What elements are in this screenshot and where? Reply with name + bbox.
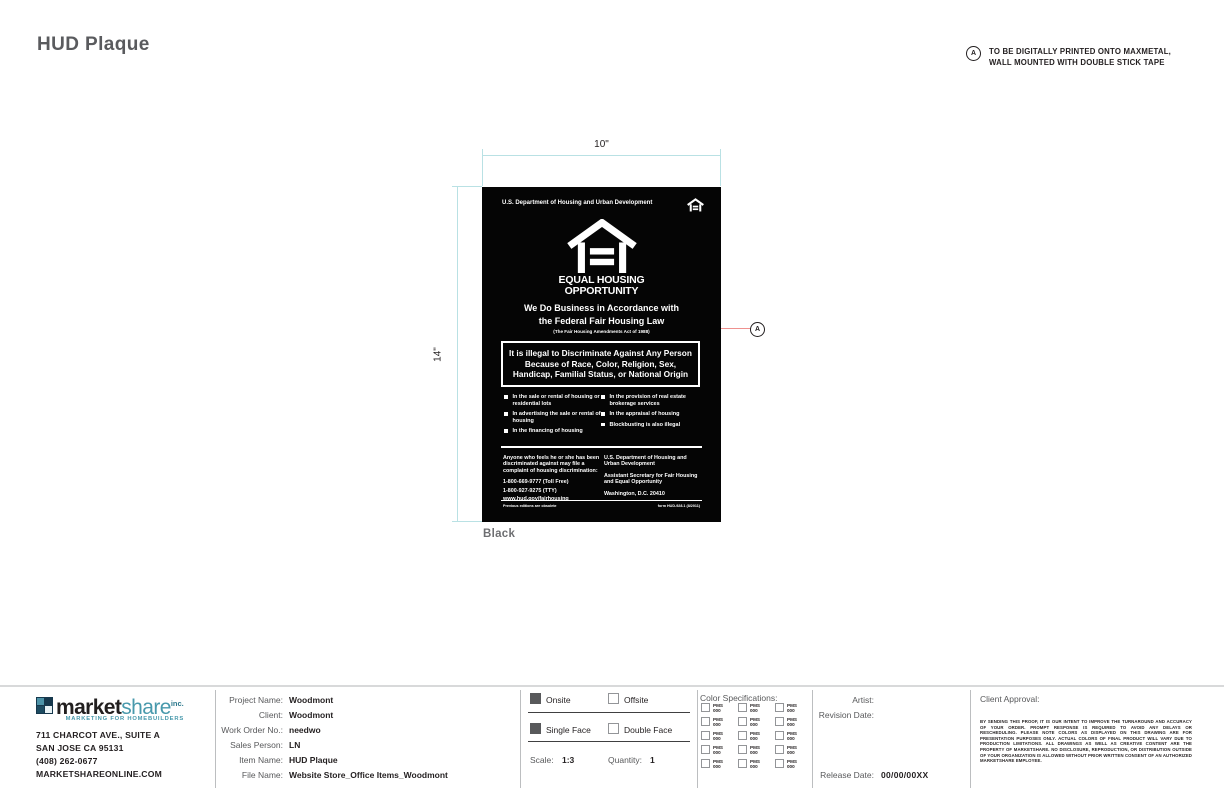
hud-plaque-artwork: U.S. Department of Housing and Urban Dev… xyxy=(482,187,721,522)
plaque-footer-left: Previous editions are obsolete xyxy=(503,504,557,508)
onsite-checkbox[interactable] xyxy=(530,693,541,704)
pms-spec-cell: PMS000 xyxy=(775,703,812,713)
revision-date-label: Revision Date: xyxy=(814,710,874,720)
pms-label: PMS000 xyxy=(787,759,797,769)
headline-line2: the Federal Fair Housing Law xyxy=(482,315,721,328)
pms-checkbox[interactable] xyxy=(738,703,747,712)
dimension-tick-bottom xyxy=(452,521,482,522)
equal-housing-line2: OPPORTUNITY xyxy=(482,286,721,297)
offsite-checkbox[interactable] xyxy=(608,693,619,704)
phone-tty: 1-800-927-9275 (TTY) xyxy=(503,488,601,494)
height-dimension-label: 14" xyxy=(433,342,444,368)
options-separator xyxy=(528,712,690,713)
pms-label: PMS000 xyxy=(713,745,723,755)
bullet-square-icon xyxy=(504,395,508,399)
address-line1: 711 CHARCOT AVE., SUITE A xyxy=(36,729,162,742)
bullet-list-left: In the sale or rental of housing or resi… xyxy=(504,394,601,439)
bullet-item: In the provision of real estate brokerag… xyxy=(601,394,701,407)
pms-spec-cell: PMS000 xyxy=(738,703,775,713)
pms-label: PMS000 xyxy=(787,717,797,727)
pms-label: PMS000 xyxy=(713,731,723,741)
company-address: 711 CHARCOT AVE., SUITE A SAN JOSE CA 95… xyxy=(36,729,162,781)
pms-label: PMS000 xyxy=(750,731,760,741)
color-specifications-title: Color Specifications: xyxy=(700,693,777,703)
double-face-checkbox[interactable] xyxy=(608,723,619,734)
note-a-text: TO BE DIGITALLY PRINTED ONTO MAXMETAL, W… xyxy=(989,46,1171,68)
double-face-label: Double Face xyxy=(624,725,672,735)
bullet-text: In the appraisal of housing xyxy=(610,411,680,418)
quantity-label: Quantity: xyxy=(608,755,642,765)
pms-checkbox[interactable] xyxy=(701,703,710,712)
bullet-list-right: In the provision of real estate brokerag… xyxy=(601,394,701,432)
bullet-item: Blockbusting is also illegal xyxy=(601,422,701,429)
field-label-file-name: File Name: xyxy=(210,770,283,780)
phone-toll-free: 1-800-669-9777 (Toll Free) xyxy=(503,479,601,485)
pms-label: PMS000 xyxy=(750,717,760,727)
bullet-square-icon xyxy=(504,412,508,416)
plaque-divider-top xyxy=(501,446,702,448)
field-value-client: Woodmont xyxy=(289,710,333,720)
dimension-extension-left xyxy=(482,149,483,186)
note-a-line2: WALL MOUNTED WITH DOUBLE STICK TAPE xyxy=(989,57,1171,68)
bullet-square-icon xyxy=(504,429,508,433)
dept-block-line3: Washington, D.C. 20410 xyxy=(604,491,700,497)
page-title: HUD Plaque xyxy=(37,34,150,56)
titleblock-divider xyxy=(697,690,698,788)
pms-label: PMS000 xyxy=(750,759,760,769)
pms-label: PMS000 xyxy=(787,745,797,755)
marketshare-wordmark: marketshareinc. xyxy=(56,694,184,718)
pms-checkbox[interactable] xyxy=(775,731,784,740)
pms-checkbox[interactable] xyxy=(775,717,784,726)
bullet-square-icon xyxy=(601,423,605,427)
pms-spec-cell: PMS000 xyxy=(701,703,738,713)
pms-spec-cell: PMS000 xyxy=(775,745,812,755)
bullet-text: In the sale or rental of housing or resi… xyxy=(513,394,602,407)
plaque-color-label: Black xyxy=(483,528,515,540)
pms-spec-cell: PMS000 xyxy=(775,731,812,741)
pms-spec-cell: PMS000 xyxy=(738,717,775,727)
client-approval-title: Client Approval: xyxy=(980,694,1040,704)
bullet-item: In advertising the sale or rental of hou… xyxy=(504,411,601,424)
pms-spec-cell: PMS000 xyxy=(738,759,775,769)
bullet-square-icon xyxy=(601,395,605,399)
scale-label: Scale: xyxy=(530,755,554,765)
onsite-label: Onsite xyxy=(546,695,571,705)
artist-label: Artist: xyxy=(814,695,874,705)
bullet-item: In the sale or rental of housing or resi… xyxy=(504,394,601,407)
pms-checkbox[interactable] xyxy=(738,731,747,740)
options-separator xyxy=(528,741,690,742)
equal-housing-logo-icon xyxy=(557,219,647,273)
field-value-project-name: Woodmont xyxy=(289,695,333,705)
field-value-file-name: Website Store_Office Items_Woodmont xyxy=(289,770,448,780)
pms-spec-cell: PMS000 xyxy=(775,759,812,769)
equal-housing-wordmark: EQUAL HOUSING OPPORTUNITY xyxy=(482,275,721,296)
plaque-footer-right: form HUD-928.1 (8/2011) xyxy=(658,504,700,508)
marketshare-tagline: MARKETING FOR HOMEBUILDERS xyxy=(53,716,184,722)
pms-checkbox[interactable] xyxy=(701,731,710,740)
offsite-label: Offsite xyxy=(624,695,648,705)
department-column: U.S. Department of Housing and Urban Dev… xyxy=(604,455,700,499)
plaque-divider-bottom xyxy=(501,500,702,501)
pms-checkbox[interactable] xyxy=(775,703,784,712)
pms-spec-cell: PMS000 xyxy=(701,731,738,741)
field-label-item-name: Item Name: xyxy=(210,755,283,765)
quantity-value: 1 xyxy=(650,755,655,765)
note-a-marker: A xyxy=(966,46,981,61)
pms-checkbox[interactable] xyxy=(738,759,747,768)
note-a: A TO BE DIGITALLY PRINTED ONTO MAXMETAL,… xyxy=(966,46,1171,68)
plaque-subhead: (The Fair Housing Amendments Act of 1988… xyxy=(482,329,721,334)
pms-checkbox[interactable] xyxy=(701,717,710,726)
dimension-line-width xyxy=(482,155,721,156)
titleblock-divider xyxy=(970,690,971,788)
discrimination-notice-box: It is illegal to Discriminate Against An… xyxy=(501,341,700,387)
bullet-text: Blockbusting is also illegal xyxy=(610,422,681,429)
field-value-item-name: HUD Plaque xyxy=(289,755,338,765)
bullet-text: In the provision of real estate brokerag… xyxy=(610,394,702,407)
callout-leader-line xyxy=(721,328,751,329)
note-a-line1: TO BE DIGITALLY PRINTED ONTO MAXMETAL, xyxy=(989,46,1171,57)
pms-label: PMS000 xyxy=(750,745,760,755)
field-label-client: Client: xyxy=(210,710,283,720)
pms-label: PMS000 xyxy=(787,703,797,713)
pms-label: PMS000 xyxy=(750,703,760,713)
single-face-label: Single Face xyxy=(546,725,591,735)
pms-spec-cell: PMS000 xyxy=(701,745,738,755)
pms-spec-cell: PMS000 xyxy=(701,717,738,727)
pms-grid: PMS000 PMS000 PMS000 PMS000 PMS000 PMS00… xyxy=(701,703,813,769)
bullet-item: In the appraisal of housing xyxy=(601,411,701,418)
width-dimension-label: 10" xyxy=(482,139,721,150)
address-phone: (408) 262-0677 xyxy=(36,755,162,768)
pms-label: PMS000 xyxy=(713,717,723,727)
marketshare-logo-mark-icon xyxy=(36,697,53,714)
release-date-value: 00/00/00XX xyxy=(881,770,928,780)
pms-checkbox[interactable] xyxy=(775,759,784,768)
complaint-text: Anyone who feels he or she has been disc… xyxy=(503,455,601,474)
single-face-checkbox[interactable] xyxy=(530,723,541,734)
pms-checkbox[interactable] xyxy=(738,717,747,726)
scale-value: 1:3 xyxy=(562,755,574,765)
release-date-label: Release Date: xyxy=(814,770,874,780)
dimension-line-height xyxy=(457,187,458,522)
field-label-sales-person: Sales Person: xyxy=(210,740,283,750)
pms-spec-cell: PMS000 xyxy=(775,717,812,727)
dept-block-line1: U.S. Department of Housing and Urban Dev… xyxy=(604,455,700,468)
titleblock-divider xyxy=(520,690,521,788)
client-approval-fine-print: BY SENDING THIS PROOF, IT IS OUR INTENT … xyxy=(980,719,1192,764)
marketshare-logo: marketshareinc. xyxy=(36,694,184,718)
address-website: MARKETSHAREONLINE.COM xyxy=(36,768,162,781)
pms-checkbox[interactable] xyxy=(701,745,710,754)
pms-checkbox[interactable] xyxy=(775,745,784,754)
pms-spec-cell: PMS000 xyxy=(738,745,775,755)
pms-spec-cell: PMS000 xyxy=(738,731,775,741)
complaint-column: Anyone who feels he or she has been disc… xyxy=(503,455,601,504)
dimension-extension-right xyxy=(720,149,721,186)
field-value-sales-person: LN xyxy=(289,740,300,750)
proof-sheet: HUD Plaque A TO BE DIGITALLY PRINTED ONT… xyxy=(0,0,1224,792)
field-value-work-order: needwo xyxy=(289,725,321,735)
headline-line1: We Do Business in Accordance with xyxy=(482,302,721,315)
dept-block-line2: Assistant Secretary for Fair Housing and… xyxy=(604,473,700,486)
pms-checkbox[interactable] xyxy=(738,745,747,754)
pms-label: PMS000 xyxy=(713,759,723,769)
titleblock-top-rule xyxy=(0,685,1224,687)
callout-a-marker: A xyxy=(750,322,765,337)
dimension-tick-top xyxy=(452,186,482,187)
bullet-text: In the financing of housing xyxy=(513,428,583,435)
equal-housing-line1: EQUAL HOUSING xyxy=(482,275,721,286)
plaque-department-line: U.S. Department of Housing and Urban Dev… xyxy=(502,200,652,206)
field-label-project-name: Project Name: xyxy=(210,695,283,705)
bullet-text: In advertising the sale or rental of hou… xyxy=(513,411,602,424)
plaque-headline: We Do Business in Accordance with the Fe… xyxy=(482,302,721,327)
pms-checkbox[interactable] xyxy=(701,759,710,768)
equal-housing-mini-logo-icon xyxy=(687,198,704,212)
pms-label: PMS000 xyxy=(787,731,797,741)
wordmark-inc: inc. xyxy=(171,699,184,708)
pms-label: PMS000 xyxy=(713,703,723,713)
address-line2: SAN JOSE CA 95131 xyxy=(36,742,162,755)
field-label-work-order: Work Order No.: xyxy=(210,725,283,735)
bullet-item: In the financing of housing xyxy=(504,428,601,435)
bullet-square-icon xyxy=(601,412,605,416)
pms-spec-cell: PMS000 xyxy=(701,759,738,769)
